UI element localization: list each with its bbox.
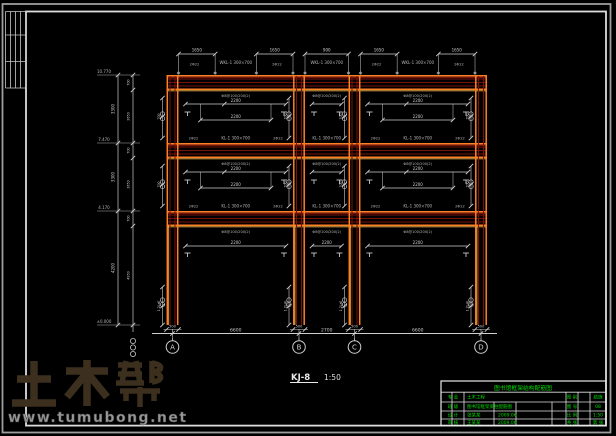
beam-label: KL-1 300×700	[221, 204, 250, 209]
dim-text: 1.2LaE	[157, 301, 161, 312]
dim-text: 700	[284, 181, 288, 187]
section-mark-circle	[130, 345, 135, 350]
title-block-value: 土木工程	[467, 394, 485, 401]
stirrup-text: Φ8@100/200(2)	[312, 162, 341, 166]
dim-text: 2200	[231, 166, 242, 171]
stirrup-text: Φ8@100/200(2)	[312, 230, 341, 234]
title-block-title: 图书馆框架结构配筋图	[494, 384, 552, 392]
dim-text: 2200	[413, 114, 424, 119]
dim-text: 500	[351, 325, 358, 329]
axis-grid-dimensions: 500A500B500C500D660027006600	[152, 325, 497, 354]
stirrup-text: Φ8@100/200(2)	[221, 230, 250, 234]
rebar-text: 2Φ22	[371, 205, 381, 209]
dim-dot	[395, 71, 399, 75]
beam-label: KL-1 300×700	[403, 136, 432, 141]
span-dim-text: 6600	[412, 328, 424, 334]
rebar-text: 2Φ22	[454, 63, 464, 67]
dim-text: 500	[478, 325, 485, 329]
drawing-label-name: KJ-8	[291, 373, 310, 383]
drawing-label-scale: 1:50	[324, 373, 341, 382]
story-dim-text: 3300	[111, 103, 116, 114]
cad-sheet: 33003300420070026507002650700495010.7707…	[0, 0, 616, 436]
sub-dim-text: 4950	[127, 271, 131, 279]
dim-text: 900	[323, 48, 331, 53]
title-block-value: 1:50	[593, 413, 603, 419]
title-block-label: 共 张	[567, 419, 578, 426]
beam-label: KL-1 300×700	[403, 204, 432, 209]
brand-glyph-mu	[66, 360, 108, 406]
dim-text: 2200	[231, 98, 242, 103]
elevation-text: 7.470	[98, 137, 110, 142]
rebar-text: 2Φ22	[190, 63, 200, 67]
rebar-text: 2Φ22	[372, 63, 382, 67]
title-block-label: 比 例	[567, 412, 578, 419]
beam-label: WKL-1 300×700	[401, 60, 434, 65]
dim-text: 700	[157, 113, 161, 119]
dim-text: 2200	[322, 240, 333, 245]
dim-text: 1.2LaE	[466, 301, 470, 312]
dim-text: 700	[284, 113, 288, 119]
beam-label: KL-1 300×700	[312, 204, 341, 209]
title-block-label: 图 号	[567, 404, 578, 410]
title-block-value: 张某某	[467, 412, 481, 419]
dim-text: 2200	[231, 240, 242, 245]
dim-text: 1.2LaE	[339, 301, 343, 312]
rebar-text: 2Φ22	[189, 137, 199, 141]
frame-drawing	[167, 75, 488, 325]
axis-bubble-label: A	[170, 344, 175, 352]
stirrup-text: Φ8@100/200(2)	[403, 230, 432, 234]
dim-dot	[303, 71, 307, 75]
brand-glyph-bang	[116, 361, 161, 407]
watermark-brand-logo	[12, 360, 161, 407]
title-block-label: 专 业	[448, 394, 459, 401]
dim-text: 700	[339, 181, 343, 187]
rebar-text: 2Φ22	[455, 137, 465, 141]
dim-dot	[437, 71, 441, 75]
dim-text: 1.2LaE	[284, 301, 288, 312]
drawing-label: KJ-8 1:50	[290, 373, 341, 383]
section-mark-circle	[130, 338, 135, 343]
watermark: www.tumubong.net	[8, 360, 188, 426]
dim-dot	[359, 71, 363, 75]
watermark-url: www.tumubong.net	[8, 410, 188, 426]
sub-dim-text: 700	[127, 147, 131, 153]
dim-text: 500	[296, 325, 303, 329]
rebar-text: 2Φ22	[273, 205, 283, 209]
dim-text: 2200	[231, 182, 242, 187]
sub-dim-text: 700	[127, 79, 131, 85]
elevation-text: ±0.000	[97, 319, 112, 324]
elevation-text: 4.170	[98, 205, 110, 210]
span-dim-text: 2700	[321, 328, 333, 334]
beam-label: KL-1 300×700	[312, 136, 341, 141]
sub-dim-text: 2650	[127, 112, 131, 120]
title-block-label: 审 核	[448, 419, 459, 426]
axis-bubble-label: C	[352, 344, 357, 352]
title-block-value: 第 张	[593, 419, 604, 426]
dim-text: 2200	[413, 166, 424, 171]
title-block-value: 结施	[594, 394, 603, 401]
rebar-text: 2Φ22	[273, 137, 283, 141]
title-block-label: 班 级	[448, 403, 459, 410]
dim-dot	[347, 71, 351, 75]
dim-text: 700	[466, 181, 470, 187]
dim-dot	[177, 71, 181, 75]
dim-dot	[213, 71, 217, 75]
beam-label: KL-1 300×700	[221, 136, 250, 141]
title-block-date: 2009.06	[498, 413, 517, 419]
span-dim-text: 6600	[230, 328, 242, 334]
brand-glyph-tu	[12, 361, 56, 403]
elevation-dimension-chains: 33003300420070026507002650700495010.7707…	[97, 69, 140, 357]
dim-text: 2200	[413, 98, 424, 103]
dim-dot	[255, 71, 259, 75]
rebar-text: 2Φ22	[189, 205, 199, 209]
dim-text: 1650	[452, 48, 463, 53]
title-block-label: 图 别	[567, 394, 578, 401]
story-dim-text: 4200	[111, 262, 116, 273]
rebar-text: 2Φ22	[272, 63, 282, 67]
section-mark-circle	[130, 351, 135, 356]
dim-text: 1650	[374, 48, 385, 53]
dim-text: 1650	[192, 48, 203, 53]
story-dim-text: 3300	[111, 171, 116, 182]
elevation-text: 10.770	[97, 69, 111, 74]
dim-text: 2200	[413, 182, 424, 187]
stirrup-text: Φ8@100/200(2)	[312, 94, 341, 98]
cad-canvas: 33003300420070026507002650700495010.7707…	[0, 0, 616, 436]
beam-label: WKL-1 300×700	[219, 60, 252, 65]
beam-label: WKL-1 300×700	[310, 60, 343, 65]
rebar-text: 2Φ22	[371, 137, 381, 141]
title-block-date: 2009.06	[498, 420, 517, 426]
dim-text: 500	[169, 325, 176, 329]
dim-text: 2200	[413, 240, 424, 245]
rebar-text: 2Φ22	[455, 205, 465, 209]
title-block-label: 设 计	[448, 412, 459, 419]
dim-text: 2200	[231, 114, 242, 119]
dim-dot	[473, 71, 477, 75]
axis-bubble-label: B	[297, 344, 302, 352]
title-block-value: 图书馆框架梁柱配筋图	[467, 403, 512, 410]
dim-text: 700	[466, 113, 470, 119]
sub-dim-text: 700	[127, 215, 131, 221]
dim-text: 700	[339, 113, 343, 119]
dim-dot	[291, 71, 295, 75]
title-block-text: 专 业土木工程图 别结施班 级图书馆框架梁柱配筋图图 号08设 计张某某2009…	[448, 394, 604, 427]
title-block-value: 08	[595, 404, 601, 410]
title-block-value: 王某某	[467, 420, 481, 426]
dim-text: 1650	[270, 48, 281, 53]
dim-text: 700	[157, 181, 161, 187]
corner-signature-table	[6, 12, 27, 89]
sub-dim-text: 2650	[127, 180, 131, 188]
axis-bubble-label: D	[478, 344, 483, 352]
